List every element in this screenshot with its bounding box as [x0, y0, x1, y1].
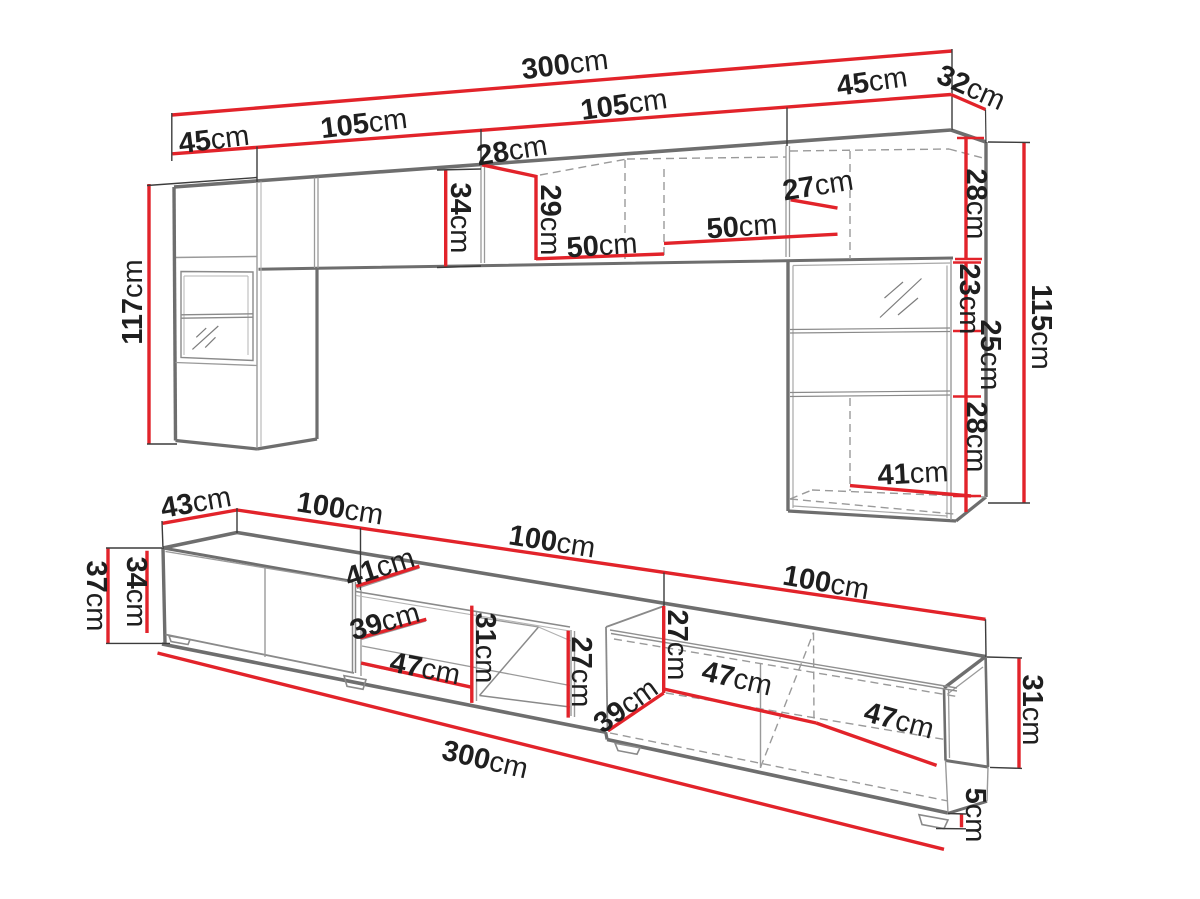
svg-text:50cm: 50cm [706, 209, 779, 246]
svg-text:117cm: 117cm [117, 259, 149, 344]
svg-text:27cm: 27cm [565, 637, 597, 708]
svg-text:115cm: 115cm [1025, 284, 1057, 369]
svg-text:37cm: 37cm [80, 561, 112, 632]
svg-text:5cm: 5cm [959, 788, 991, 843]
svg-text:25cm: 25cm [974, 320, 1006, 391]
svg-text:50cm: 50cm [566, 228, 639, 265]
svg-text:31cm: 31cm [469, 613, 501, 684]
svg-text:34cm: 34cm [444, 183, 476, 254]
svg-text:29cm: 29cm [534, 185, 566, 256]
svg-text:31cm: 31cm [1016, 675, 1048, 746]
svg-text:41cm: 41cm [877, 456, 950, 492]
svg-text:28cm: 28cm [960, 402, 992, 473]
svg-text:28cm: 28cm [960, 169, 992, 240]
svg-text:34cm: 34cm [120, 557, 152, 628]
svg-text:27cm: 27cm [661, 610, 693, 681]
